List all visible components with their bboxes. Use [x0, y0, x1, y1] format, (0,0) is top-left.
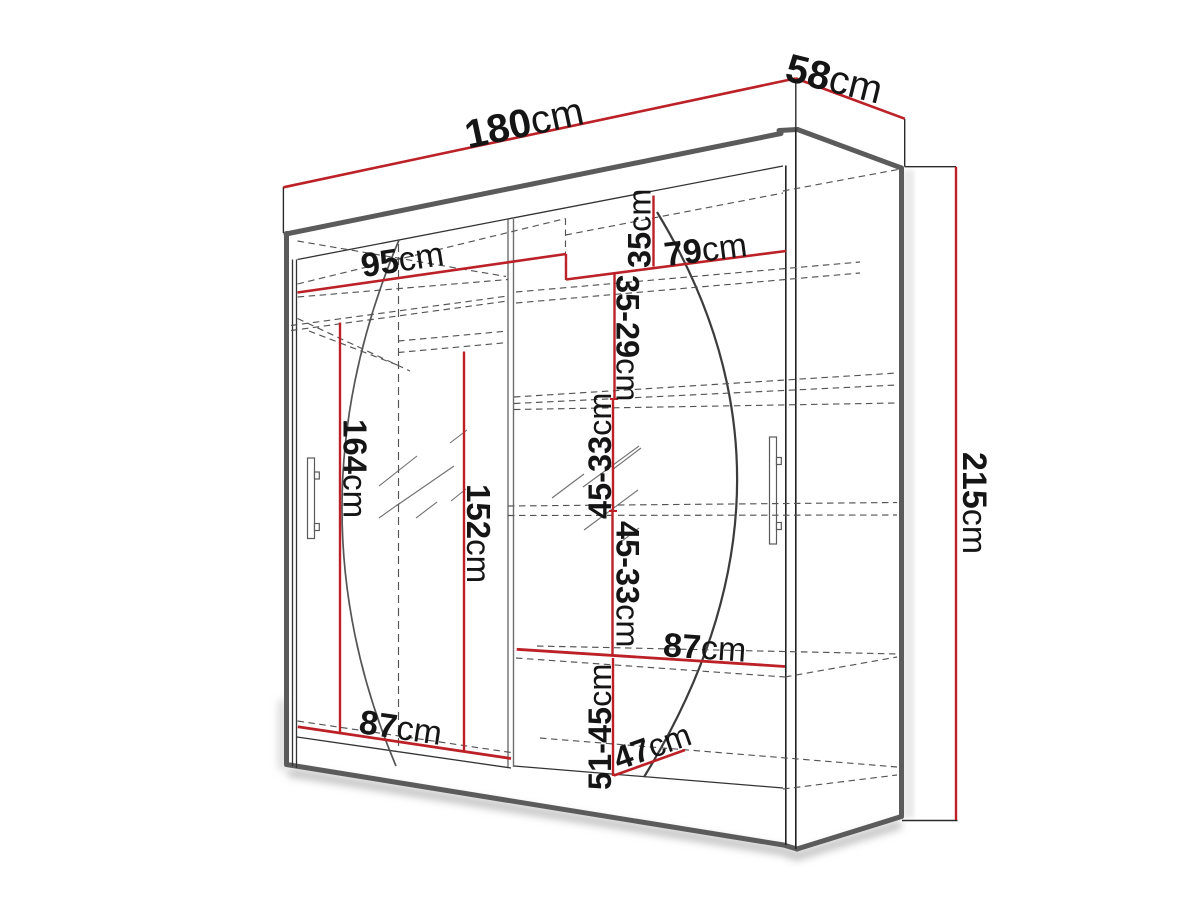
svg-text:35-29cm: 35-29cm	[610, 275, 646, 401]
svg-text:164cm: 164cm	[337, 419, 374, 518]
svg-text:87cm: 87cm	[662, 626, 747, 669]
svg-text:35cm: 35cm	[622, 189, 658, 268]
svg-text:215cm: 215cm	[955, 452, 993, 554]
svg-text:45-33cm: 45-33cm	[582, 393, 618, 519]
svg-text:51-45cm: 51-45cm	[582, 664, 618, 790]
svg-text:45-33cm: 45-33cm	[610, 521, 646, 647]
svg-text:152cm: 152cm	[460, 484, 497, 583]
